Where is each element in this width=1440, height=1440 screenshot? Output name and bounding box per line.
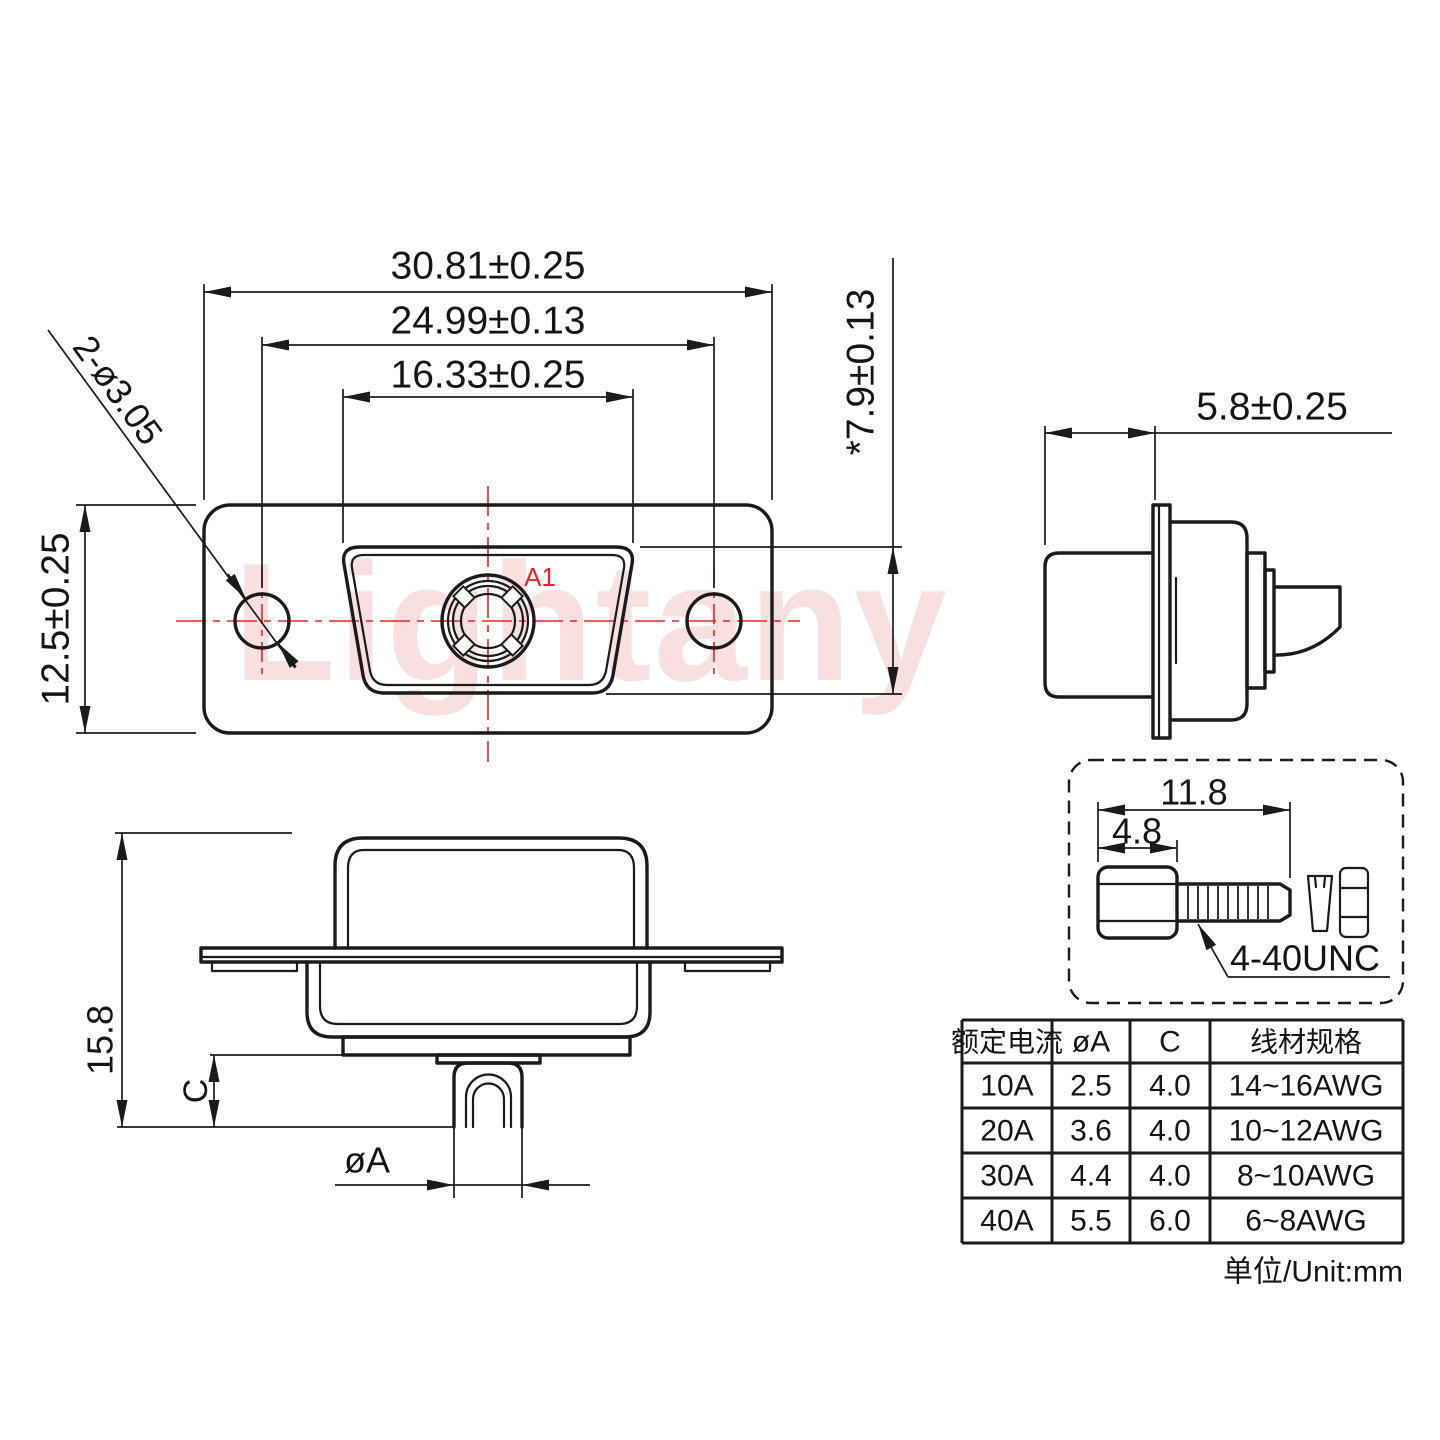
flange-slab [201, 948, 782, 962]
screw-detail: 11.8 4.8 4-40UNC [1069, 760, 1403, 1003]
table-header-c: C [1159, 1026, 1181, 1059]
dim-text-insert-height: *7.9±0.13 [840, 289, 883, 456]
table-header-dia: øA [1072, 1026, 1110, 1059]
table-header-current: 额定电流 [951, 1027, 1063, 1058]
dim-text-insert-width: 16.33±0.25 [391, 354, 586, 397]
technical-drawing-page: Lightany A1 [0, 0, 1440, 1440]
unit-note: 单位/Unit:mm [1223, 1256, 1403, 1289]
svg-text:4.4: 4.4 [1070, 1160, 1112, 1193]
section-view [201, 838, 782, 1127]
side-insert-face [1247, 553, 1265, 688]
dim-text-total-height: 15.8 [80, 1005, 121, 1075]
svg-text:30A: 30A [980, 1160, 1033, 1193]
dim-text-screw-total: 11.8 [1160, 772, 1227, 813]
svg-text:8~10AWG: 8~10AWG [1237, 1160, 1375, 1193]
dim-text-screw-head: 4.8 [1112, 811, 1162, 852]
side-rear-body [1045, 553, 1153, 697]
dim-text-flange-width: 30.81±0.25 [391, 245, 586, 288]
body-inner [320, 962, 637, 1024]
svg-text:10A: 10A [980, 1070, 1033, 1103]
svg-text:4.0: 4.0 [1149, 1070, 1191, 1103]
insert-step [343, 1037, 630, 1055]
screw-threads [1188, 886, 1268, 919]
hood-outer [335, 838, 647, 948]
thread-leader-line [1198, 924, 1228, 977]
svg-text:6~8AWG: 6~8AWG [1245, 1205, 1366, 1238]
svg-text:3.6: 3.6 [1070, 1115, 1112, 1148]
watermark-text: Lightany [233, 528, 949, 716]
spec-table: 额定电流 øA C 线材规格 10A 2.5 4.0 14~16AWG 20A … [951, 1020, 1403, 1243]
table-row: 10A 2.5 4.0 14~16AWG [980, 1070, 1383, 1103]
thread-label: 4-40UNC [1230, 938, 1380, 979]
dim-text-mounting-holes: 2-ø3.05 [65, 328, 171, 452]
table-header-row: 额定电流 øA C 线材规格 [951, 1026, 1362, 1059]
dim-text-tail-length: C [177, 1079, 215, 1104]
dim-text-tail-diameter: øA [344, 1140, 390, 1181]
side-contact-tail [1274, 587, 1340, 655]
svg-text:14~16AWG: 14~16AWG [1229, 1070, 1384, 1103]
screw-shank [1177, 884, 1290, 921]
wedge-part [1308, 876, 1332, 931]
hood-inner [348, 850, 634, 948]
svg-text:4.0: 4.0 [1149, 1115, 1191, 1148]
body-outer [307, 962, 650, 1037]
side-contact-base [1265, 570, 1274, 672]
dim-text-hole-spacing: 24.99±0.13 [391, 300, 586, 343]
contact-label-a1: A1 [524, 562, 556, 592]
table-header-wire: 线材规格 [1250, 1027, 1362, 1058]
table-row: 40A 5.5 6.0 6~8AWG [980, 1205, 1366, 1238]
table-row: 30A 4.4 4.0 8~10AWG [980, 1160, 1375, 1193]
dim-text-depth: 5.8±0.25 [1196, 386, 1348, 429]
svg-text:6.0: 6.0 [1149, 1205, 1191, 1238]
connector-drawing-svg: Lightany A1 [0, 0, 1440, 1440]
dim-text-flange-height: 12.5±0.25 [35, 532, 78, 705]
side-flange-plate [1153, 505, 1170, 738]
svg-text:2.5: 2.5 [1070, 1070, 1112, 1103]
svg-text:40A: 40A [980, 1205, 1033, 1238]
side-view [1045, 505, 1340, 738]
svg-text:5.5: 5.5 [1070, 1205, 1112, 1238]
table-row: 20A 3.6 4.0 10~12AWG [980, 1115, 1383, 1148]
screw-head [1098, 867, 1177, 938]
svg-text:20A: 20A [980, 1115, 1033, 1148]
side-front-shell [1170, 522, 1247, 720]
solder-cup-inner [473, 1083, 504, 1127]
svg-text:10~12AWG: 10~12AWG [1229, 1115, 1384, 1148]
sleeve-part [1340, 868, 1368, 937]
svg-text:4.0: 4.0 [1149, 1160, 1191, 1193]
